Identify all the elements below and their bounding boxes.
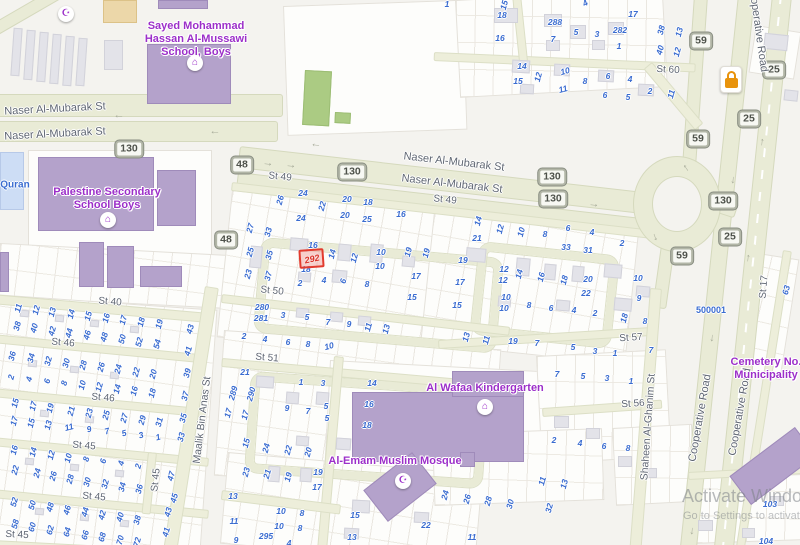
route-shield: 25 [738,111,760,128]
roundabout-center [652,176,702,232]
street-label: St 46 [91,392,115,405]
plot-number: 16 [364,399,373,409]
building [296,436,310,447]
plot-number: 22 [421,520,430,530]
building [256,375,275,388]
activate-windows-watermark-subtext: Go to Settings to activate Windows. [683,510,800,522]
school-icon[interactable]: ⌂ [187,55,203,71]
building [783,89,798,101]
sayed-school-label[interactable]: Sayed Mohammad [148,20,245,32]
street-label: St 45 [82,491,106,504]
plot-number: 3 [281,310,286,320]
plot-number: 21 [240,367,249,377]
plot-number: 19 [458,255,467,265]
building [330,311,344,322]
plot-number: 14 [517,61,526,71]
plot-number: 10 [375,261,384,271]
plot-number: 281 [254,313,268,323]
plot-number: 18 [497,10,506,20]
plot-number: 8 [300,508,305,518]
plot-number: 4 [263,334,268,344]
plot-number: 10 [376,247,385,257]
plot-number: 25 [362,214,371,224]
plot-number: 8 [306,339,311,349]
poi-building [157,170,196,226]
plot-number: 295 [259,531,273,541]
plot-number: 1 [617,41,622,51]
plot-number: 10 [274,521,283,531]
plot-number: 13 [228,491,237,501]
plot-number: 4 [590,227,595,237]
selected-plot-292[interactable]: 292 [298,248,324,269]
plot-number: 4 [322,275,327,285]
school-icon[interactable]: ⌂ [100,212,116,228]
route-shield: 130 [538,169,566,186]
street-label: St 49 [433,193,457,206]
lock-body [725,78,738,88]
building [62,36,74,87]
plot-number: 17 [628,9,637,19]
plot-number: 10 [276,506,285,516]
poi-building [0,252,9,292]
poi-building [79,242,104,287]
plot-number: 28 [482,495,494,507]
palestine-school-label[interactable]: School Boys [74,199,141,211]
building [300,468,313,483]
route-shield: 48 [215,232,237,249]
building [49,34,61,85]
plot-number: 104 [759,536,773,545]
plot-number: 9 [347,319,352,329]
building [36,32,48,83]
plot-number: 13 [673,26,685,38]
map-canvas[interactable]: 1304813013013048592525591302559Naser Al-… [0,0,800,545]
plot-number: 1 [445,0,450,9]
building [25,458,35,466]
plot-number: 2 [648,86,653,96]
plot-number: 8 [626,443,631,453]
plot-number: 11 [557,83,568,95]
plot-number: 20 [342,194,351,204]
plot-number: 20 [340,210,349,220]
plot-number: 24 [298,188,307,198]
plot-number: 15 [513,76,522,86]
street-label: St 57 [619,332,643,345]
plot-number: 10 [501,292,510,302]
plot-number: 12 [671,46,683,58]
plot-number: 8 [365,279,370,289]
plot-number: 30 [504,498,516,510]
plot-number: 5 [574,27,579,37]
plot-number: 9 [285,403,290,413]
plot-number: 4 [572,305,577,315]
plot-number: 4 [628,74,633,84]
direction-arrow: ← [114,109,125,121]
plot-number: 5 [324,401,329,411]
plot-number: 1 [299,377,304,387]
plot-number: 2 [298,278,303,288]
mosque-icon[interactable]: ☪ [395,473,411,489]
poi-building [352,392,524,462]
building [618,456,632,467]
plot-number: 15 [350,510,359,520]
building [10,28,22,77]
plot-number: 4 [287,538,292,545]
plot-number: 24 [296,213,305,223]
plot-number: 5 [305,312,310,322]
plot-number: 17 [312,482,321,492]
plot-number: 72 [131,536,143,545]
map-label: Quran [0,180,29,191]
al-emam-muslim-mosque-label[interactable]: Al-Emam Muslim Mosque [328,455,461,467]
poi-building [140,266,182,287]
street-label: St 45 [5,529,29,541]
plot-number: 7 [535,338,540,348]
route-shield: 130 [709,193,737,210]
plot-number: 15 [407,292,416,302]
al-wafaa-kindergarten-label[interactable]: Al Wafaa Kindergarten [426,382,544,394]
direction-arrow: ← [310,137,322,150]
plot-number: 6 [606,71,611,81]
direction-arrow: → [285,158,297,171]
route-shield: 59 [687,131,709,148]
plot-number: 10 [633,273,642,283]
plot-number: 14 [367,378,376,388]
map-label: 500001 [696,305,726,315]
building [104,40,123,70]
park-area [302,70,332,126]
plot-number: 6 [549,303,554,313]
plot-number: 21 [472,233,481,243]
plot-number: 1 [629,376,634,386]
plot-number: 16 [396,209,405,219]
building-tan [103,0,137,23]
building [23,30,35,81]
street-label: St 17 [758,275,771,299]
plot-number: 5 [571,342,576,352]
plot-number: 3 [595,29,600,39]
plot-number: 12 [499,264,508,274]
plot-number: 3 [605,373,610,383]
route-shield: 130 [539,191,567,208]
plot-number: 3 [321,378,326,388]
plot-number: 8 [543,229,548,239]
cemetery-municipality-label[interactable]: Municipality [734,369,798,381]
plot-number: 19 [508,336,517,346]
building [115,470,125,478]
plot-number: 8 [298,523,303,533]
plot-number: 22 [581,288,590,298]
plot-number: 7 [555,369,560,379]
plot-number: 19 [313,467,322,477]
poi-building [460,452,475,467]
direction-arrow: ← [210,125,221,137]
direction-arrow: ↓ [730,174,737,187]
plot-number: 7 [551,34,556,44]
plot-number: 32 [543,502,555,514]
building [613,297,632,312]
plot-number: 8 [583,76,588,86]
plot-number: 6 [286,337,291,347]
route-shield: 59 [671,248,693,265]
route-shield: 130 [338,164,366,181]
plot-number: 9 [234,535,239,545]
plot-number: 17 [455,277,464,287]
plot-number: 7 [306,406,311,416]
direction-arrow: → [588,197,600,210]
route-shield: 59 [690,33,712,50]
route-shield: 48 [231,157,253,174]
poi-building [158,0,208,9]
plot-number: 20 [583,274,592,284]
mosque-icon[interactable]: ☪ [58,6,74,22]
plot-number: 288 [548,17,562,27]
building [70,464,80,472]
plot-number: 6 [602,441,607,451]
building [556,299,571,311]
plot-number: 17 [411,271,420,281]
plot-number: 5 [626,92,631,102]
plot-number: 10 [499,303,508,313]
building [586,428,600,439]
plot-number: 15 [452,300,461,310]
plot-number: 7 [649,345,654,355]
plot-number: 18 [362,420,371,430]
plot-number: 33 [561,242,570,252]
plot-number: 3 [593,346,598,356]
lock-icon[interactable] [720,66,742,93]
street-label: St 56 [621,398,645,411]
building [75,38,87,87]
building [336,437,352,450]
plot-number: 2 [620,238,625,248]
plot-number: 6 [603,90,608,100]
plot-number: 6 [566,223,571,233]
building [554,416,569,428]
route-shield: 25 [719,229,741,246]
cemetery-municipality-label[interactable]: Cemetery No. [731,356,800,368]
plot-number: 31 [583,245,592,255]
street-label: St 49 [268,170,292,183]
building [603,263,622,279]
poi-building [107,246,134,288]
plot-number: 5 [325,413,330,423]
plot-number: 11 [230,516,239,526]
direction-arrow: → [262,156,274,169]
school-icon[interactable]: ⌂ [477,399,493,415]
plot-number: 8 [643,316,648,326]
plot-number: 2 [593,308,598,318]
street-label: St 45 [72,440,96,453]
route-shield: 130 [115,141,143,158]
building [130,326,140,334]
palestine-school-label[interactable]: Palestine Secondary [53,186,161,198]
activate-windows-watermark: Activate Windows [682,486,800,507]
plot-number: 8 [527,300,532,310]
plot-number: 13 [347,532,356,542]
plot-number: 16 [495,33,504,43]
plot-number: 70 [114,534,126,545]
building [465,247,486,263]
plot-number: 4 [578,438,583,448]
selected-plot-number: 292 [303,252,320,265]
plot-number: 5 [581,371,586,381]
plot-number: 7 [326,317,331,327]
park-area [334,112,351,124]
plot-number: 9 [637,293,642,303]
street-label: St 50 [260,284,284,297]
plot-number: 2 [242,331,247,341]
street-label: St 51 [255,352,279,365]
building [592,40,605,50]
plot-number: 12 [498,275,507,285]
building [742,528,755,538]
street-label: St 60 [656,64,680,76]
plot-number: 18 [363,197,372,207]
sayed-school-label[interactable]: Hassan Al-Mussawi [145,33,247,45]
plot-number: 1 [613,348,618,358]
plot-number: 282 [613,25,627,35]
plot-number: 11 [468,532,477,542]
plot-number: 2 [552,435,557,445]
street-label: St 40 [98,296,122,309]
plot-number: 280 [255,302,269,312]
